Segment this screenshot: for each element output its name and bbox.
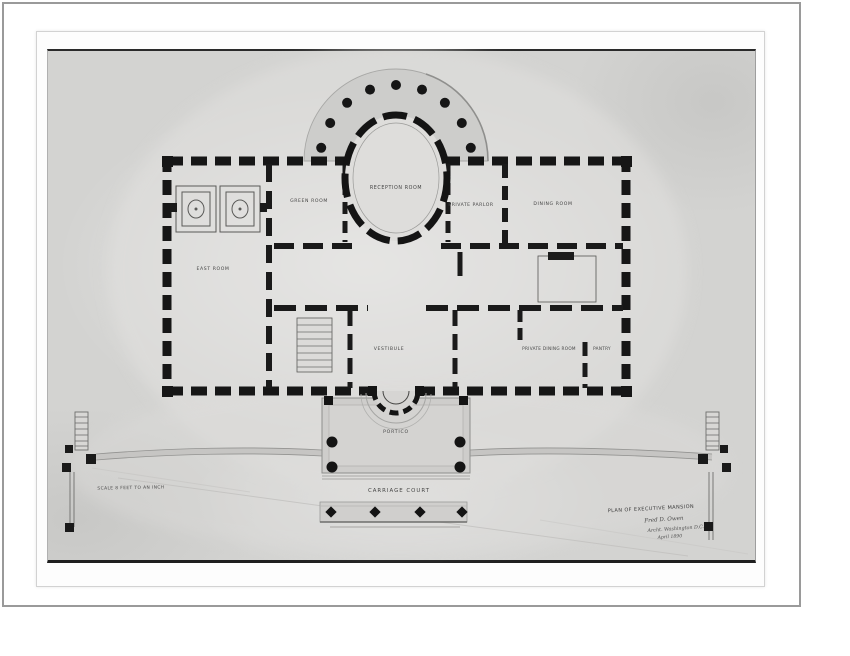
oval-reception-room	[345, 115, 447, 241]
portico-label: PORTICO	[383, 429, 409, 435]
scale-note: SCALE 8 FEET TO AN INCH	[97, 484, 164, 491]
private-parlor-label: PRIVATE PARLOR	[448, 202, 493, 208]
reception-room-label: RECEPTION ROOM	[370, 185, 422, 191]
signature-line-3: April 1890	[656, 533, 682, 541]
scanned-archive-page: RECEPTION ROOM GREEN ROOM PRIVATE PARLOR…	[0, 0, 850, 656]
private-dining-room-label: PRIVATE DINING ROOM	[522, 346, 576, 351]
floor-plan-drawing: RECEPTION ROOM GREEN ROOM PRIVATE PARLOR…	[47, 49, 756, 563]
dining-room-label: DINING ROOM	[533, 201, 572, 207]
vestibule-label: VESTIBULE	[374, 346, 405, 352]
green-room-label: GREEN ROOM	[290, 198, 328, 204]
pantry-label: PANTRY	[593, 346, 611, 351]
stair-hall	[297, 318, 332, 372]
carriage-court-label: CARRIAGE COURT	[368, 488, 430, 494]
signature-line-2: Archt. Washington D.C.	[646, 524, 705, 534]
east-room-label: EAST ROOM	[196, 266, 229, 272]
